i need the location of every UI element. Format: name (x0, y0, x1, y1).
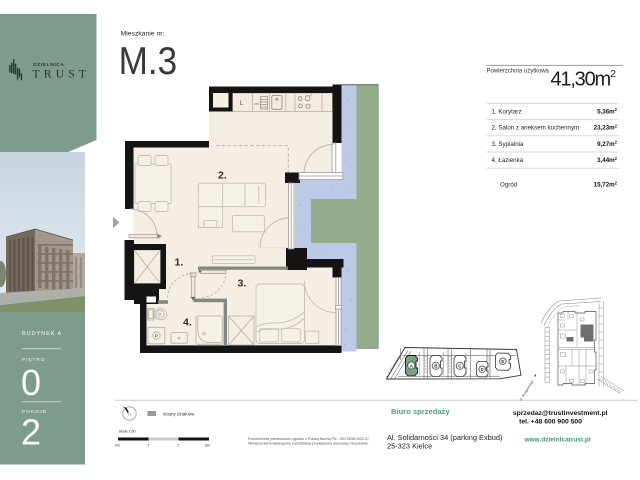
svg-text:sprzedaz@trustinvestment.pl: sprzedaz@trustinvestment.pl (513, 410, 608, 417)
svg-text:L: L (240, 100, 244, 107)
svg-text:D: D (481, 367, 484, 372)
svg-text:2. Salon z aneksem kuchennym: 2. Salon z aneksem kuchennym (492, 125, 580, 132)
svg-text:3,44m2: 3,44m2 (597, 156, 618, 164)
svg-text:3m: 3m (205, 444, 210, 448)
svg-text:E: E (501, 359, 504, 364)
svg-text:Niniejsza karta katalogowa prz: Niniejsza karta katalogowa przedstawia p… (248, 441, 368, 445)
svg-text:2: 2 (21, 412, 41, 453)
svg-text:Skala 1:50: Skala 1:50 (119, 430, 136, 434)
svg-text:5,36m2: 5,36m2 (597, 107, 618, 115)
svg-text:BUDYNEK A: BUDYNEK A (22, 331, 62, 337)
svg-text:3. Sypialnia: 3. Sypialnia (492, 141, 525, 148)
svg-text:4. Łazienka: 4. Łazienka (492, 157, 524, 164)
svg-text:B: B (434, 364, 437, 369)
svg-text:Powierzchnia użytkowa: Powierzchnia użytkowa (487, 69, 550, 75)
svg-text:25-323 Kielce: 25-323 Kielce (387, 442, 432, 451)
svg-text:Ogród: Ogród (500, 182, 518, 189)
svg-text:1. Korytarz: 1. Korytarz (492, 108, 522, 115)
svg-text:1.: 1. (175, 257, 184, 269)
svg-text:Powierzchnie pomieszczeń zgodn: Powierzchnie pomieszczeń zgodne z Polską… (248, 437, 370, 441)
svg-text:15,72m2: 15,72m2 (594, 180, 618, 188)
svg-text:1: 1 (148, 444, 150, 448)
svg-text:M.3: M.3 (119, 38, 178, 82)
svg-text:23,23m2: 23,23m2 (594, 124, 618, 132)
svg-text:www.dzielnicatrust.pl: www.dzielnicatrust.pl (524, 437, 591, 444)
svg-text:41,30m: 41,30m (550, 69, 610, 91)
svg-text:tel. +48 600 900 500: tel. +48 600 900 500 (519, 419, 582, 426)
svg-text:2: 2 (610, 68, 616, 80)
svg-text:9,27m2: 9,27m2 (597, 140, 618, 148)
svg-text:0: 0 (21, 362, 41, 403)
svg-text:N: N (128, 412, 131, 417)
svg-text:3.: 3. (238, 278, 247, 290)
svg-text:2.: 2. (218, 169, 227, 181)
svg-text:4.: 4. (183, 317, 192, 329)
svg-text:zm.: zm. (254, 102, 260, 106)
svg-text:Al. Solidarności 34 (parking E: Al. Solidarności 34 (parking Exbud) (387, 433, 502, 442)
svg-text:Mieszkanie nr:: Mieszkanie nr: (121, 31, 165, 38)
svg-text:ściany działowe: ściany działowe (163, 411, 195, 416)
svg-text:TRUST: TRUST (33, 68, 91, 81)
svg-text:2: 2 (177, 444, 179, 448)
svg-text:Biuro sprzedaży: Biuro sprzedaży (391, 407, 450, 416)
svg-text:0m: 0m (115, 444, 120, 448)
